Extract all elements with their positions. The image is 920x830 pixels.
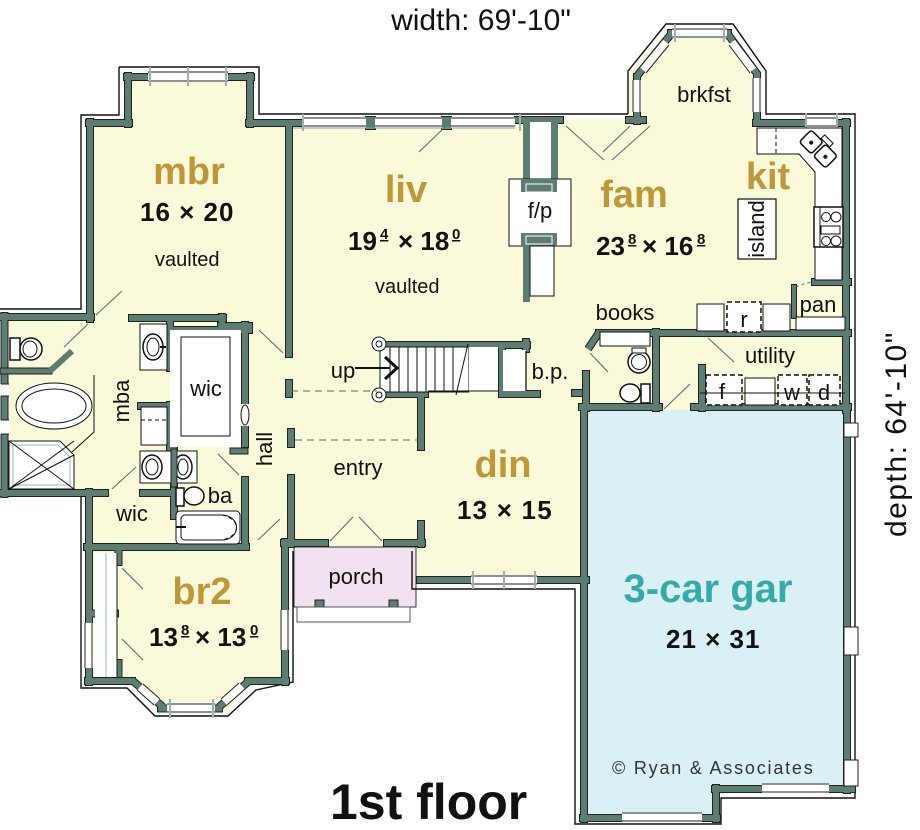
svg-text:4: 4 (380, 226, 389, 243)
svg-text:depth: 64'-10": depth: 64'-10" (880, 331, 913, 537)
svg-text:up: up (331, 358, 355, 383)
svg-text:pan: pan (800, 292, 837, 317)
svg-text:8: 8 (628, 231, 636, 248)
svg-text:mbr: mbr (153, 151, 225, 193)
svg-text:entry: entry (334, 455, 383, 480)
svg-text:books: books (596, 300, 655, 325)
svg-text:b.p.: b.p. (532, 359, 569, 384)
svg-text:din: din (475, 444, 532, 486)
svg-text:brkfst: brkfst (677, 82, 731, 107)
svg-text:× 18: × 18 (398, 226, 449, 256)
svg-text:f: f (719, 379, 726, 404)
svg-text:19: 19 (348, 226, 377, 256)
svg-text:0: 0 (250, 622, 258, 639)
svg-text:utility: utility (745, 343, 795, 368)
svg-text:13: 13 (149, 622, 178, 652)
svg-text:23: 23 (596, 231, 625, 261)
svg-text:0: 0 (452, 226, 460, 243)
svg-text:width: 69'-10": width: 69'-10" (390, 4, 571, 37)
svg-text:porch: porch (328, 564, 383, 589)
svg-text:f/p: f/p (528, 198, 552, 223)
svg-text:© Ryan & Associates: © Ryan & Associates (612, 758, 815, 778)
svg-text:kit: kit (746, 156, 791, 198)
svg-text:wic: wic (189, 376, 222, 401)
svg-text:8: 8 (697, 231, 705, 248)
svg-text:hall: hall (252, 432, 277, 466)
svg-text:island: island (744, 200, 769, 257)
svg-text:r: r (740, 307, 747, 332)
svg-text:vaulted: vaulted (155, 249, 220, 271)
svg-text:ba: ba (208, 483, 233, 508)
svg-text:3-car gar: 3-car gar (624, 567, 793, 611)
svg-text:mba: mba (109, 379, 134, 423)
svg-text:13 × 15: 13 × 15 (457, 495, 553, 525)
svg-text:21 × 31: 21 × 31 (666, 624, 760, 654)
svg-text:br2: br2 (172, 571, 231, 613)
svg-text:1st floor: 1st floor (330, 774, 527, 830)
svg-text:fam: fam (600, 174, 668, 216)
svg-text:vaulted: vaulted (375, 276, 440, 298)
svg-text:16 × 20: 16 × 20 (140, 197, 234, 227)
svg-text:8: 8 (181, 622, 189, 639)
svg-text:× 16: × 16 (642, 231, 693, 261)
svg-text:× 13: × 13 (195, 622, 246, 652)
svg-text:wic: wic (115, 501, 148, 526)
svg-text:liv: liv (385, 169, 427, 211)
